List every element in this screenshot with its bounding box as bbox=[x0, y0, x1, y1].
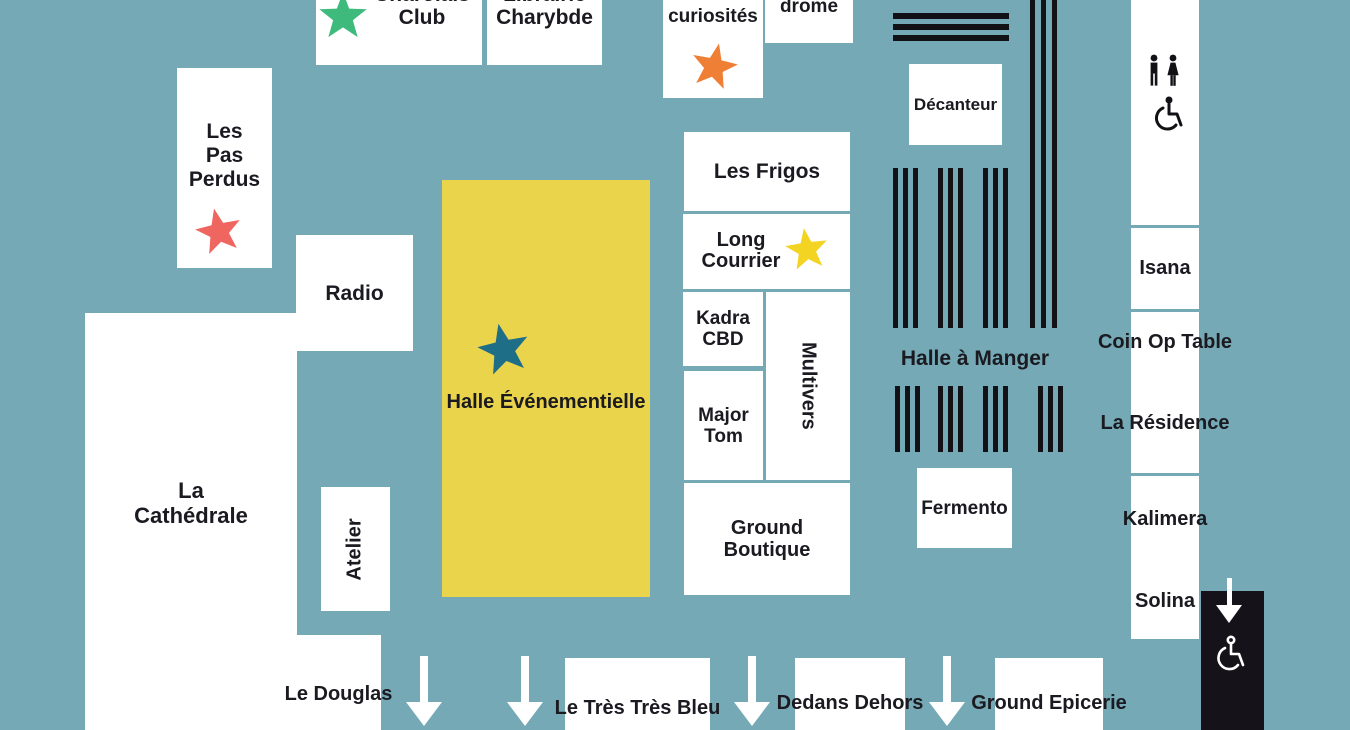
stripe-bar bbox=[913, 168, 918, 328]
venue-box-ground-boutique: Ground Boutique bbox=[684, 483, 850, 595]
stripe-bar bbox=[1058, 386, 1063, 452]
mens-womens-restroom-icon bbox=[1145, 53, 1185, 91]
yellow-star-icon bbox=[781, 224, 833, 276]
venue-label: Les Pas Perdus bbox=[177, 120, 272, 192]
stripe-bar bbox=[1052, 0, 1057, 328]
venue-box-major-tom: Major Tom bbox=[684, 371, 763, 480]
venue-box-dedans-dehors: Dedans Dehors bbox=[795, 658, 905, 730]
teal-star-icon bbox=[471, 317, 537, 383]
arrow-head bbox=[406, 702, 442, 726]
stripe-bar bbox=[993, 168, 998, 328]
venue-box-coinop-residence: Coin Op Table La Résidence bbox=[1131, 312, 1199, 473]
venue-floor-map: Charolais Club Librairie Charybde des cu… bbox=[0, 0, 1350, 730]
stripe-bar bbox=[948, 168, 953, 328]
arrow-shaft bbox=[748, 656, 756, 702]
venue-box-isana: Isana bbox=[1131, 228, 1199, 309]
venue-box-long-courrier: Long Courrier bbox=[683, 214, 850, 289]
venue-label: Charolais Club bbox=[366, 0, 478, 29]
venue-label: Le Très Très Bleu bbox=[555, 697, 721, 719]
venue-label: des curiosités bbox=[663, 0, 763, 28]
venue-box-multivers: Multivers bbox=[766, 292, 850, 480]
venue-label: Le Douglas bbox=[285, 683, 393, 705]
venue-box-les-pas-perdus: Les Pas Perdus bbox=[177, 68, 272, 268]
venue-label: Solina bbox=[1135, 590, 1195, 613]
venue-box-velodrome: drome bbox=[765, 0, 853, 43]
venue-label: Multivers bbox=[797, 342, 820, 430]
stripe-bar bbox=[938, 168, 943, 328]
venue-box-la-cathedrale: La Cathédrale bbox=[85, 313, 297, 730]
halle-a-manger-stripes-lower bbox=[983, 386, 1008, 452]
down-arrow-icon bbox=[929, 656, 965, 726]
green-star-icon bbox=[317, 0, 369, 43]
stripe-bar bbox=[893, 13, 1009, 19]
arrow-shaft bbox=[521, 656, 529, 702]
venue-label: Major Tom bbox=[698, 405, 749, 447]
venue-box-fermento: Fermento bbox=[917, 468, 1012, 548]
stripe-bar bbox=[958, 386, 963, 452]
halle-a-manger-stripes-upper bbox=[893, 168, 918, 328]
arrow-head bbox=[929, 702, 965, 726]
down-arrow-icon bbox=[507, 656, 543, 726]
arrow-head bbox=[734, 702, 770, 726]
stripe-bar bbox=[905, 386, 910, 452]
horizontal-stripes-icon bbox=[893, 13, 1009, 41]
venue-label: La Cathédrale bbox=[85, 478, 297, 528]
venue-label: Kadra CBD bbox=[696, 308, 750, 350]
venue-box-atelier: Atelier bbox=[321, 487, 390, 611]
venue-label: Décanteur bbox=[914, 93, 997, 116]
stripe-bar bbox=[895, 386, 900, 452]
arrow-head bbox=[1216, 605, 1242, 623]
stripe-bar bbox=[1003, 168, 1008, 328]
stripe-bar bbox=[893, 35, 1009, 41]
venue-box-decanteur: Décanteur bbox=[909, 64, 1002, 145]
stripe-bar bbox=[903, 168, 908, 328]
stripe-bar bbox=[1038, 386, 1043, 452]
red-star-icon bbox=[189, 202, 248, 261]
stripe-bar bbox=[993, 386, 998, 452]
down-arrow-icon bbox=[1216, 578, 1242, 623]
stripe-bar bbox=[958, 168, 963, 328]
venue-label: Ground Boutique bbox=[724, 517, 811, 561]
venue-label: Coin Op Table bbox=[1098, 332, 1232, 353]
stripe-bar bbox=[948, 386, 953, 452]
down-arrow-icon bbox=[734, 656, 770, 726]
venue-box-kalimera-solina: Kalimera Solina bbox=[1131, 476, 1199, 639]
halle-a-manger-stripes-upper bbox=[983, 168, 1008, 328]
down-arrow-icon bbox=[406, 656, 442, 726]
wheelchair-accessible-icon bbox=[1149, 95, 1185, 135]
venue-label: Librairie Charybde bbox=[487, 0, 602, 29]
long-vertical-stripes-icon bbox=[1030, 0, 1057, 328]
halle-a-manger-stripes-upper bbox=[938, 168, 963, 328]
venue-box-kadra-cbd: Kadra CBD bbox=[683, 292, 763, 366]
stripe-bar bbox=[893, 168, 898, 328]
venue-label: Dedans Dehors bbox=[777, 692, 924, 715]
restrooms-area bbox=[1131, 0, 1199, 225]
venue-label: Fermento bbox=[921, 497, 1008, 520]
venue-box-radio: Radio bbox=[296, 235, 413, 351]
stripe-bar bbox=[1030, 0, 1035, 328]
stripe-bar bbox=[915, 386, 920, 452]
area-label-halle-a-manger: Halle à Manger bbox=[890, 347, 1060, 370]
venue-label: Isana bbox=[1139, 257, 1190, 280]
stripe-bar bbox=[983, 168, 988, 328]
stripe-bar bbox=[983, 386, 988, 452]
venue-box-cabinet-des-curiosites: des curiosités bbox=[663, 0, 763, 98]
stripe-bar bbox=[1048, 386, 1053, 452]
venue-label: Atelier bbox=[344, 518, 367, 580]
venue-label: Long Courrier bbox=[691, 230, 791, 272]
venue-box-les-frigos: Les Frigos bbox=[684, 132, 850, 211]
stripe-bar bbox=[938, 386, 943, 452]
halle-a-manger-stripes-lower bbox=[1038, 386, 1063, 452]
arrow-shaft bbox=[1227, 578, 1232, 605]
arrow-shaft bbox=[943, 656, 951, 702]
venue-box-le-douglas: Le Douglas bbox=[296, 635, 381, 730]
halle-a-manger-stripes-lower bbox=[938, 386, 963, 452]
stripe-bar bbox=[893, 24, 1009, 30]
venue-box-charolais-club: Charolais Club bbox=[316, 0, 482, 65]
halle-a-manger-stripes-lower bbox=[895, 386, 920, 452]
venue-label: Ground Epicerie bbox=[971, 692, 1127, 715]
venue-box-le-tres-tres-bleu: Le Très Très Bleu bbox=[565, 658, 710, 730]
stripe-bar bbox=[1003, 386, 1008, 452]
arrow-shaft bbox=[420, 656, 428, 702]
venue-box-halle-evenementielle: Halle Événementielle bbox=[442, 180, 650, 597]
venue-label: La Résidence bbox=[1101, 413, 1230, 434]
wheelchair-accessible-exit-icon bbox=[1211, 635, 1247, 675]
arrow-head bbox=[507, 702, 543, 726]
venue-label: Halle Événementielle bbox=[431, 391, 661, 414]
venue-label: Radio bbox=[325, 282, 383, 305]
venue-label: drome bbox=[765, 0, 853, 18]
venue-label: Les Frigos bbox=[714, 160, 820, 183]
venue-box-librairie-charybde: Librairie Charybde bbox=[487, 0, 602, 65]
orange-star-icon bbox=[684, 37, 743, 96]
stripe-bar bbox=[1041, 0, 1046, 328]
venue-label: Kalimera bbox=[1123, 508, 1208, 531]
venue-box-ground-epicerie: Ground Epicerie bbox=[995, 658, 1103, 730]
